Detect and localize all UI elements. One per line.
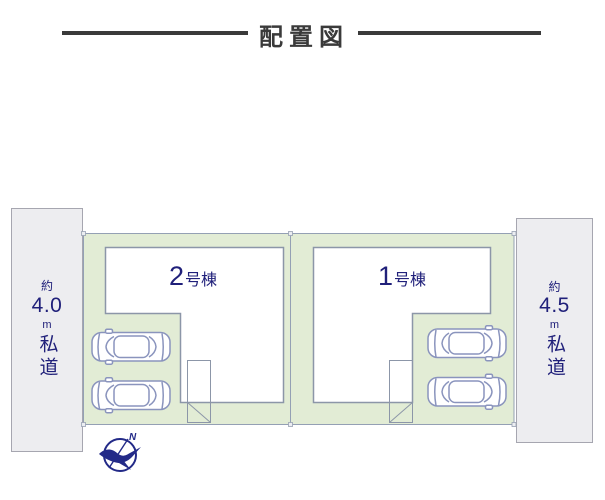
building-1-suffix: 号棟 bbox=[394, 273, 426, 289]
car-icon bbox=[92, 378, 170, 413]
car-icon bbox=[428, 374, 506, 409]
road-left-width-value: 4.0 bbox=[32, 294, 63, 318]
road-right-type: 私道 bbox=[545, 334, 564, 380]
road-right-unit: m bbox=[550, 319, 559, 332]
building-2-label: 2 号棟 bbox=[169, 263, 217, 290]
road-right-width-value: 4.5 bbox=[539, 294, 570, 318]
car-icon bbox=[92, 329, 170, 364]
compass-icon: N bbox=[99, 432, 141, 471]
site-plan-page: 配置図 bbox=[0, 0, 605, 500]
building-2-number: 2 bbox=[169, 263, 184, 290]
road-right-label: 約 4.5 m 私道 bbox=[516, 218, 593, 442]
building-2-suffix: 号棟 bbox=[185, 273, 217, 289]
building-1-label: 1 号棟 bbox=[378, 263, 426, 290]
road-right-approx: 約 bbox=[548, 280, 560, 294]
road-left-unit: m bbox=[42, 319, 51, 332]
road-left-label: 約 4.0 m 私道 bbox=[11, 208, 83, 451]
compass-north-label: N bbox=[129, 432, 137, 443]
road-left-approx: 約 bbox=[41, 279, 53, 293]
road-left-type: 私道 bbox=[38, 334, 57, 380]
car-icon bbox=[428, 326, 506, 361]
building-1-number: 1 bbox=[378, 263, 393, 290]
site-plan-drawing: N bbox=[0, 0, 605, 500]
